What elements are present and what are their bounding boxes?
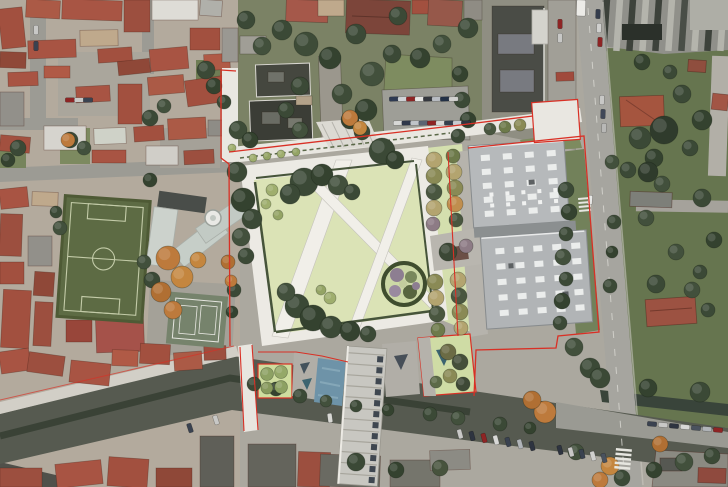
- strip-tree: [484, 123, 496, 135]
- building-roof: [152, 0, 198, 20]
- building-roof: [262, 112, 280, 124]
- car: [558, 33, 563, 42]
- tree: [629, 127, 651, 149]
- car: [598, 37, 603, 47]
- tree: [620, 162, 636, 178]
- tree: [232, 228, 250, 246]
- strip-tree: [426, 184, 442, 200]
- car: [423, 97, 433, 102]
- tree: [332, 84, 352, 104]
- building-roof: [464, 0, 482, 20]
- site-plan-svg: [0, 0, 728, 487]
- car: [74, 98, 83, 103]
- car: [419, 121, 429, 126]
- building-roof: [26, 0, 61, 19]
- building-roof: [0, 187, 29, 210]
- bush: [263, 152, 271, 160]
- tree: [606, 246, 618, 258]
- strip-tree: [514, 119, 526, 131]
- car: [600, 95, 605, 105]
- tree: [451, 129, 465, 143]
- bus: [576, 0, 586, 16]
- car: [410, 121, 420, 126]
- tree: [253, 37, 271, 55]
- tree: [227, 162, 247, 182]
- tree: [433, 35, 451, 53]
- building-roof: [0, 7, 26, 49]
- building-roof: [296, 96, 312, 105]
- tree: [684, 282, 700, 298]
- greenhouse-roof: [622, 24, 662, 40]
- building-roof: [146, 146, 178, 165]
- strip-tree: [454, 321, 468, 335]
- car: [389, 97, 399, 102]
- tree: [638, 210, 654, 226]
- tree: [701, 303, 715, 317]
- park: [399, 280, 407, 288]
- strip-tree: [459, 239, 473, 253]
- car: [432, 97, 442, 102]
- tree: [452, 66, 468, 82]
- car: [402, 121, 412, 126]
- car: [327, 413, 333, 423]
- tree: [347, 453, 365, 471]
- building-roof: [248, 444, 296, 487]
- tree: [603, 279, 617, 293]
- tree: [554, 293, 570, 309]
- park: [389, 285, 401, 297]
- tree: [451, 411, 465, 425]
- building-roof: [124, 0, 150, 32]
- car: [713, 427, 723, 432]
- tree: [294, 32, 318, 56]
- strip-tree: [275, 366, 288, 379]
- building: [529, 179, 535, 184]
- tree: [553, 316, 567, 330]
- tree: [292, 122, 308, 138]
- tree: [634, 54, 650, 70]
- tree: [277, 283, 295, 301]
- autumn-tree: [171, 266, 193, 288]
- tree: [423, 407, 437, 421]
- building-roof: [498, 34, 534, 54]
- autumn-tree: [523, 391, 541, 409]
- building-roof: [117, 58, 150, 75]
- car: [34, 25, 39, 34]
- tree: [704, 448, 720, 464]
- building-roof: [44, 66, 70, 78]
- tree: [226, 306, 238, 318]
- tree: [590, 368, 610, 388]
- tree: [646, 462, 662, 478]
- strip-tree: [447, 196, 463, 212]
- building-roof: [33, 302, 53, 347]
- tree: [693, 189, 711, 207]
- tree: [137, 255, 151, 269]
- car: [449, 97, 459, 102]
- tree: [524, 422, 536, 434]
- strip-tree: [429, 306, 445, 322]
- autumn-tree: [164, 301, 182, 319]
- tree: [383, 45, 401, 63]
- building-roof: [0, 92, 24, 126]
- building-roof: [147, 74, 184, 95]
- car: [427, 121, 437, 126]
- tree: [493, 417, 507, 431]
- car: [658, 422, 668, 427]
- tree: [693, 265, 707, 279]
- car: [440, 97, 450, 102]
- building-roof: [8, 71, 38, 86]
- house-roof: [711, 93, 728, 111]
- building-roof: [94, 127, 127, 144]
- tree: [706, 232, 722, 248]
- building-roof: [222, 28, 238, 62]
- car: [597, 23, 602, 33]
- car: [65, 98, 74, 103]
- park: [405, 271, 417, 283]
- bush: [292, 148, 300, 156]
- building-roof: [190, 28, 220, 50]
- autumn-tree: [652, 436, 668, 452]
- car: [83, 98, 92, 103]
- tree: [340, 321, 360, 341]
- tree: [10, 140, 26, 156]
- tree: [682, 140, 698, 156]
- building-roof: [0, 214, 23, 257]
- strip-tree: [451, 288, 467, 304]
- tree: [607, 215, 621, 229]
- strip-tree: [426, 168, 442, 184]
- park: [390, 268, 404, 282]
- house-roof: [630, 191, 672, 207]
- tree: [654, 176, 670, 192]
- building-roof: [62, 0, 123, 21]
- tree: [410, 48, 430, 68]
- building-roof: [500, 70, 534, 92]
- tree: [217, 95, 231, 109]
- strip-tree: [430, 376, 442, 388]
- tree: [690, 382, 710, 402]
- bush: [277, 150, 285, 158]
- strip-tree: [428, 290, 444, 306]
- car: [415, 97, 425, 102]
- car: [34, 41, 39, 50]
- tree: [639, 379, 657, 397]
- strip-tree: [456, 377, 470, 391]
- autumn-tree: [221, 255, 235, 269]
- building-roof: [167, 117, 206, 140]
- soccer-field: [55, 194, 151, 324]
- autumn-tree: [592, 472, 608, 487]
- boundary-notch: [532, 99, 581, 142]
- tree: [360, 326, 376, 342]
- car: [702, 426, 712, 431]
- tree: [206, 78, 222, 94]
- car: [601, 109, 606, 119]
- tree: [555, 249, 571, 265]
- tree: [559, 227, 573, 241]
- tree: [650, 116, 678, 144]
- tree: [291, 77, 309, 95]
- strip-tree: [426, 152, 442, 168]
- autumn-tree: [225, 275, 237, 287]
- bush: [266, 184, 278, 196]
- car: [602, 123, 607, 133]
- building-roof: [66, 320, 92, 342]
- tree: [673, 85, 691, 103]
- strip-tree: [452, 304, 468, 320]
- building-roof: [33, 271, 55, 296]
- building-roof: [1, 289, 32, 348]
- tree: [278, 102, 294, 118]
- building-roof: [80, 30, 118, 47]
- building-roof: [0, 262, 24, 284]
- tree: [388, 462, 404, 478]
- building-roof: [556, 72, 574, 82]
- tree: [242, 209, 262, 229]
- tree: [559, 272, 573, 286]
- tree: [360, 62, 384, 86]
- building-roof: [28, 236, 52, 266]
- tree: [197, 61, 215, 79]
- bush: [261, 199, 271, 209]
- tree: [272, 20, 292, 40]
- tree: [346, 24, 366, 44]
- building-roof: [32, 192, 58, 207]
- tree: [50, 206, 62, 218]
- tree: [77, 141, 91, 155]
- strip-tree: [261, 382, 273, 394]
- autumn-tree: [151, 282, 171, 302]
- building-roof: [112, 350, 139, 367]
- tree: [242, 132, 258, 148]
- building-roof: [92, 150, 126, 163]
- greenhouse-roof: [690, 0, 728, 30]
- car: [393, 121, 403, 126]
- tree: [647, 275, 665, 293]
- building-roof: [107, 457, 149, 487]
- car: [406, 97, 416, 102]
- tree: [389, 7, 407, 25]
- tree: [143, 173, 157, 187]
- building-roof: [118, 84, 142, 124]
- strip-tree: [499, 121, 511, 133]
- tree: [558, 182, 574, 198]
- building-roof: [55, 460, 103, 487]
- bush: [316, 285, 326, 295]
- strip-tree: [275, 381, 288, 394]
- strip-tree: [431, 323, 445, 337]
- tree: [53, 221, 67, 235]
- car: [444, 121, 454, 126]
- building: [508, 263, 513, 268]
- park: [412, 282, 420, 290]
- tree: [663, 65, 677, 79]
- tree: [238, 248, 254, 264]
- building-roof: [199, 0, 222, 17]
- bush: [324, 292, 336, 304]
- strip-tree: [426, 217, 440, 231]
- autumn-tree: [190, 252, 206, 268]
- car: [669, 423, 679, 428]
- house-roof: [645, 296, 697, 326]
- car: [691, 425, 701, 430]
- car: [596, 9, 601, 19]
- tree: [320, 395, 332, 407]
- strip-tree: [426, 200, 442, 216]
- school-dome: [210, 215, 216, 221]
- tree: [675, 453, 693, 471]
- building-roof: [318, 0, 344, 16]
- aerial-masterplan-view: [0, 0, 728, 487]
- building-roof: [427, 0, 462, 27]
- building-roof: [200, 436, 234, 487]
- building-roof: [149, 46, 189, 71]
- bush: [249, 154, 257, 162]
- strip-tree: [452, 354, 468, 370]
- car: [680, 424, 690, 429]
- tree: [432, 460, 448, 476]
- autumn-tree: [61, 133, 75, 147]
- tree: [231, 188, 255, 212]
- house-roof: [688, 59, 707, 72]
- tree: [605, 155, 619, 169]
- house-roof: [698, 468, 727, 484]
- tree: [561, 204, 577, 220]
- car: [558, 19, 563, 28]
- tree: [350, 400, 362, 412]
- tree: [280, 184, 300, 204]
- strip-tree: [261, 368, 274, 381]
- strip-tree: [443, 369, 457, 383]
- building-roof: [268, 72, 284, 82]
- greenhouses: [598, 0, 728, 54]
- tree: [565, 338, 583, 356]
- car: [398, 97, 408, 102]
- tree: [157, 99, 171, 113]
- tree: [319, 47, 341, 69]
- building-roof: [134, 125, 165, 142]
- tree: [692, 110, 712, 130]
- car: [436, 121, 446, 126]
- tree: [320, 316, 342, 338]
- strip-tree: [450, 272, 466, 288]
- tree: [1, 153, 15, 167]
- tree: [237, 11, 255, 29]
- building-roof: [0, 52, 26, 69]
- tree: [344, 184, 360, 200]
- tree: [458, 18, 478, 38]
- tree: [293, 389, 307, 403]
- strip-tree: [427, 274, 443, 290]
- tree: [382, 404, 394, 416]
- autumn-tree: [353, 121, 367, 135]
- tree: [668, 244, 684, 260]
- tree: [142, 110, 158, 126]
- tree: [386, 151, 404, 169]
- bush: [273, 210, 283, 220]
- autumn-tree: [156, 246, 180, 270]
- building-roof: [0, 468, 42, 487]
- tree: [638, 162, 658, 182]
- car: [647, 421, 657, 426]
- building-roof: [156, 468, 192, 487]
- building-roof: [184, 149, 215, 165]
